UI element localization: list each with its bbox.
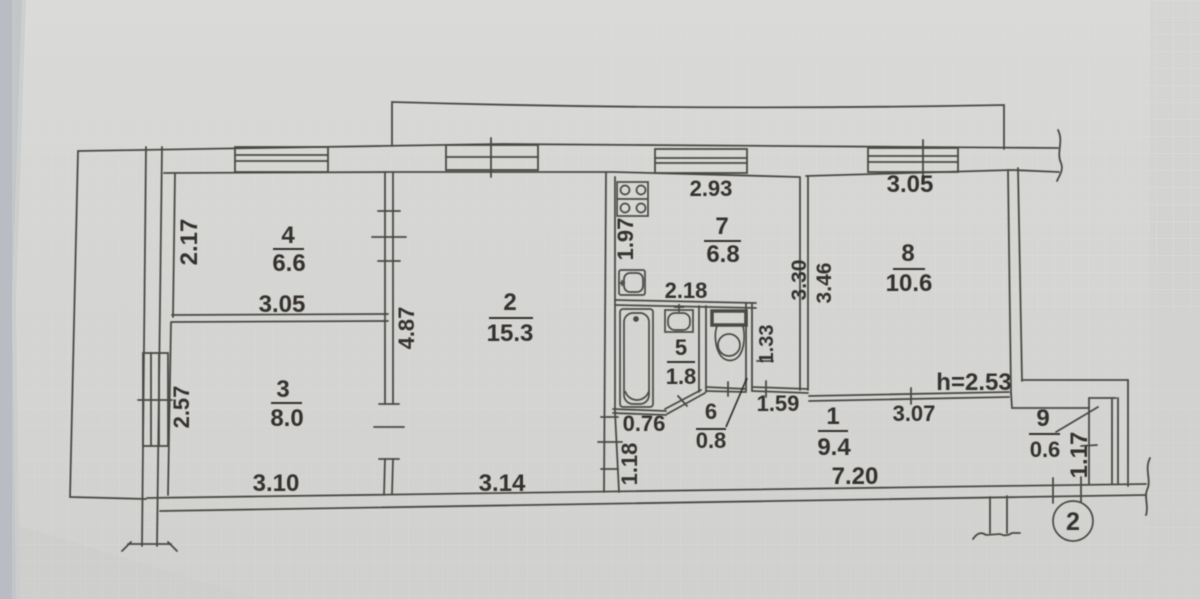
svg-text:1.59: 1.59	[757, 391, 800, 416]
svg-text:3.05: 3.05	[259, 291, 306, 318]
svg-text:2.18: 2.18	[665, 278, 708, 303]
svg-text:7.20: 7.20	[832, 463, 879, 490]
svg-text:8.0: 8.0	[270, 405, 303, 432]
svg-text:1.33: 1.33	[756, 325, 778, 364]
svg-text:6.8: 6.8	[706, 241, 739, 268]
svg-text:2: 2	[1066, 508, 1080, 536]
svg-text:3: 3	[276, 376, 289, 403]
svg-text:1.97: 1.97	[613, 218, 638, 261]
svg-text:4.87: 4.87	[394, 307, 419, 350]
svg-text:9: 9	[1036, 405, 1049, 432]
svg-text:2: 2	[503, 289, 516, 316]
svg-text:1.18: 1.18	[617, 443, 642, 486]
svg-text:5: 5	[675, 335, 687, 360]
svg-text:1.8: 1.8	[666, 364, 697, 389]
svg-text:3.30: 3.30	[788, 260, 811, 301]
svg-text:3.05: 3.05	[887, 171, 934, 198]
svg-text:15.3: 15.3	[487, 320, 534, 347]
svg-text:9.4: 9.4	[817, 434, 851, 461]
svg-text:3.10: 3.10	[253, 470, 300, 497]
svg-text:10.6: 10.6	[886, 270, 933, 297]
svg-text:4: 4	[281, 222, 295, 249]
svg-text:2.17: 2.17	[176, 219, 203, 266]
svg-text:3.07: 3.07	[893, 401, 936, 426]
svg-text:0.6: 0.6	[1030, 437, 1061, 462]
svg-text:1: 1	[826, 403, 839, 430]
svg-text:8: 8	[901, 240, 914, 267]
svg-text:6: 6	[705, 399, 717, 424]
svg-text:7: 7	[715, 213, 728, 240]
svg-text:0.8: 0.8	[696, 428, 727, 453]
svg-text:3.14: 3.14	[479, 470, 526, 497]
svg-text:3.46: 3.46	[813, 263, 836, 304]
svg-text:2.93: 2.93	[690, 176, 733, 201]
svg-text:1.17: 1.17	[1066, 432, 1093, 479]
svg-text:0.76: 0.76	[623, 411, 666, 436]
svg-text:h=2.53: h=2.53	[936, 369, 1011, 396]
svg-text:6.6: 6.6	[272, 250, 305, 277]
svg-text:2.57: 2.57	[169, 386, 194, 429]
